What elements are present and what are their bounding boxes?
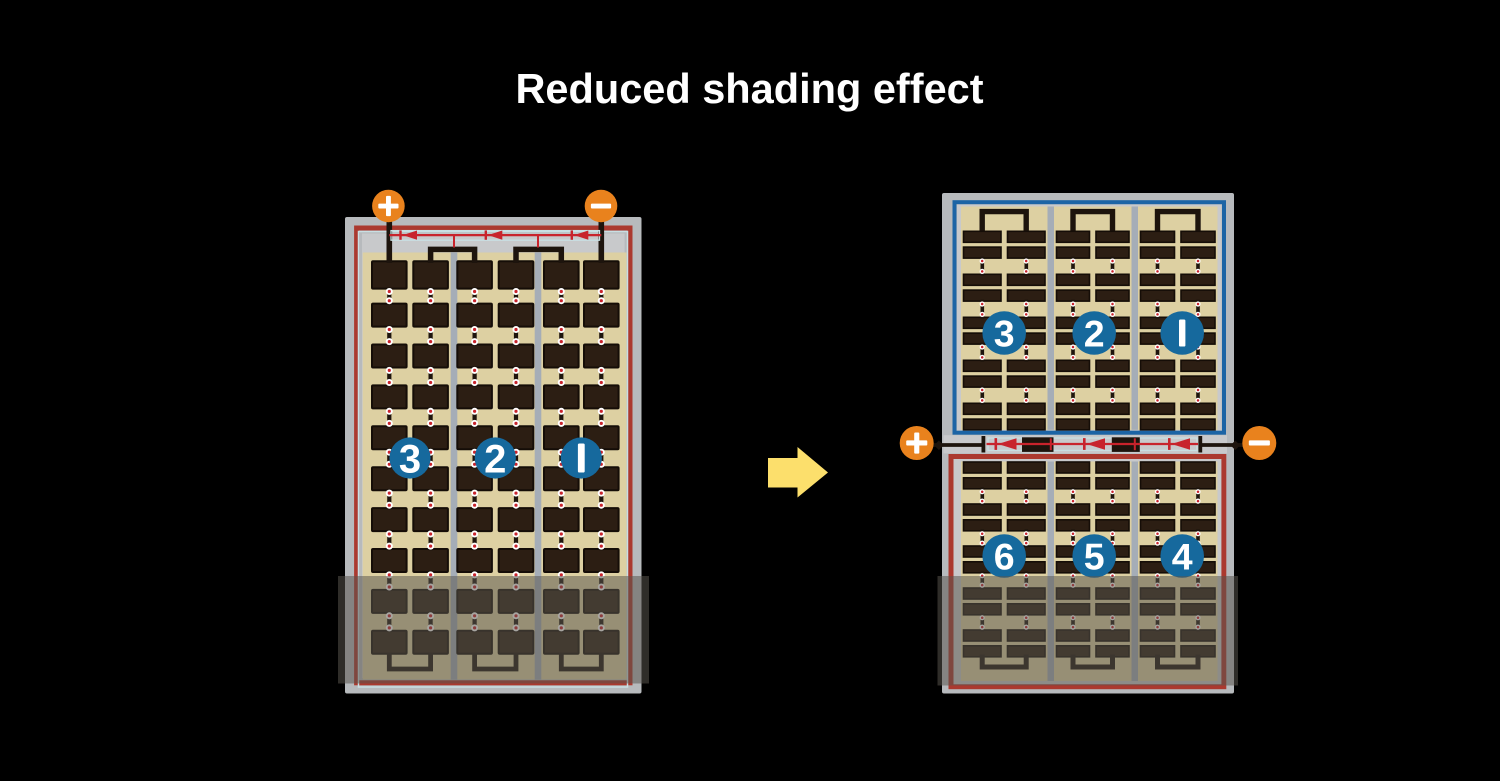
svg-text:2: 2 [1084,313,1105,355]
svg-text:5: 5 [1084,536,1105,578]
svg-text:3: 3 [399,437,421,481]
svg-text:3: 3 [994,313,1015,355]
svg-text:Reduced shading effect: Reduced shading effect [515,65,983,112]
svg-text:2: 2 [484,437,506,481]
svg-text:4: 4 [1172,536,1193,578]
svg-text:6: 6 [994,536,1015,578]
